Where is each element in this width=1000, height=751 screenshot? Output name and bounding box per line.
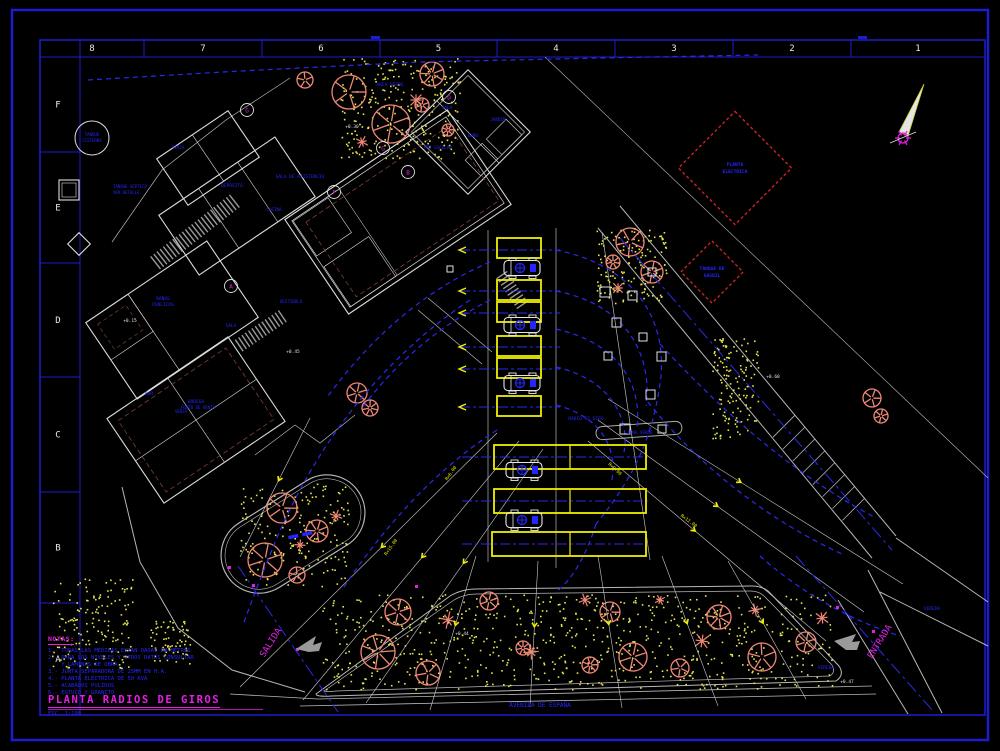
svg-text:+0.30: +0.30 — [345, 124, 359, 130]
right-road-edge2 — [598, 228, 872, 558]
grid-bubble: D — [443, 91, 456, 104]
tree-symbol — [297, 72, 313, 88]
tree-symbol — [863, 389, 881, 407]
svg-text:JARDIN: JARDIN — [490, 117, 506, 122]
svg-text:G: G — [245, 107, 249, 114]
palm-symbol — [439, 611, 456, 628]
grid-bubble: G — [241, 104, 254, 117]
palm-symbol — [356, 136, 368, 148]
palm-symbol — [816, 612, 828, 624]
palm-symbol — [655, 595, 665, 605]
grid-bubble: G — [377, 142, 390, 155]
avenue-edge2 — [300, 694, 876, 706]
svg-text:D: D — [55, 316, 60, 326]
frame-tick — [371, 36, 380, 39]
ruler-column-numbers: 87654321 — [89, 44, 920, 54]
car-symbol — [506, 460, 542, 481]
svg-text:AVENIDA DE ESPAÑA: AVENIDA DE ESPAÑA — [509, 702, 571, 709]
svg-text:B: B — [406, 169, 410, 176]
svg-text:RADIO DE GIRO: RADIO DE GIRO — [568, 416, 604, 422]
svg-text:TANQUE DE: TANQUE DE — [700, 266, 725, 272]
cad-drawing-canvas[interactable]: 87654321 FEDCBA — [0, 0, 1000, 751]
column-square — [447, 266, 453, 272]
svg-text:VER DETALLE: VER DETALLE — [113, 190, 140, 195]
svg-text:AREA VERDE: AREA VERDE — [376, 82, 403, 88]
svg-text:VERJA: VERJA — [172, 145, 185, 150]
grid-bubble: B — [402, 166, 415, 179]
valve-diamond-symbol — [68, 233, 91, 256]
column-square — [658, 425, 666, 433]
svg-text:B: B — [55, 544, 60, 554]
svg-text:D: D — [447, 94, 451, 101]
tree-symbol — [267, 493, 297, 523]
svg-text:4: 4 — [553, 44, 558, 54]
palm-symbol — [695, 634, 709, 648]
palm-symbol — [749, 604, 762, 617]
tree-symbol — [582, 657, 598, 673]
utility-diamond: PLANTAELECTRICA — [678, 111, 791, 224]
svg-text:+0.60: +0.60 — [766, 374, 780, 380]
svg-text:7: 7 — [200, 44, 205, 54]
svg-text:6: 6 — [318, 44, 323, 54]
svg-text:+0.45: +0.45 — [286, 349, 300, 355]
svg-text:+0.44: +0.44 — [455, 631, 469, 637]
wing-main-hall — [285, 110, 511, 314]
grid-bubbles-layer: GFAGDB — [225, 91, 456, 293]
wing-corridor — [159, 137, 315, 275]
palm-symbol — [295, 540, 306, 551]
entrada-arrow-icon — [834, 634, 860, 650]
svg-text:ELECTRICA: ELECTRICA — [723, 169, 748, 175]
tree-symbol — [671, 659, 689, 677]
svg-text:ZONA VERDE: ZONA VERDE — [627, 430, 653, 435]
tree-symbol — [707, 605, 731, 629]
grid-bubble: A — [225, 280, 238, 293]
svg-text:1: 1 — [915, 44, 920, 54]
palm-symbol — [613, 283, 623, 293]
car-symbol — [504, 258, 540, 279]
svg-text:F: F — [55, 101, 60, 111]
tree-symbol — [600, 602, 620, 622]
parking-stall — [497, 396, 541, 416]
tree-symbol — [361, 635, 395, 669]
tree-symbol — [362, 400, 378, 416]
tree-symbol — [516, 641, 530, 655]
svg-text:PLANTA: PLANTA — [727, 162, 744, 168]
svg-text:3: 3 — [671, 44, 676, 54]
svg-text:SALIDA: SALIDA — [258, 626, 284, 659]
svg-text:COCINA: COCINA — [266, 207, 282, 212]
utility-diamond: TANQUE DEGASOIL — [681, 241, 743, 303]
right-road-parking-stripes — [773, 415, 865, 520]
ground-cover-speckles — [52, 58, 833, 691]
svg-text:SALA DE ASISTENCIA: SALA DE ASISTENCIA — [276, 174, 325, 180]
svg-text:2: 2 — [789, 44, 794, 54]
parking-stall — [497, 238, 541, 258]
svg-text:C: C — [55, 431, 60, 441]
wing-bottom — [107, 337, 285, 503]
svg-text:R=12.00: R=12.00 — [679, 513, 698, 529]
svg-text:E: E — [55, 204, 60, 214]
car-symbol — [504, 373, 540, 394]
svg-text:BAÑOS: BAÑOS — [156, 295, 170, 302]
salida-arrow-icon — [296, 636, 322, 652]
car-symbol — [504, 315, 540, 336]
svg-text:A: A — [229, 283, 233, 290]
svg-text:BAR: BAR — [145, 391, 153, 397]
svg-text:VESTIBULO: VESTIBULO — [280, 299, 303, 304]
tree-symbol — [420, 62, 444, 86]
svg-text:VEREDA: VEREDA — [818, 665, 835, 671]
tree-symbol — [442, 124, 454, 136]
frame-tick — [858, 36, 867, 39]
tree-symbol — [616, 228, 644, 256]
svg-text:+0.15: +0.15 — [123, 318, 137, 324]
column-square — [600, 287, 610, 297]
roads-layer — [112, 57, 988, 714]
svg-text:ENTRADA: ENTRADA — [866, 623, 895, 661]
svg-text:PUBLICOS: PUBLICOS — [152, 302, 174, 308]
grid-bubble: F — [328, 186, 341, 199]
svg-text:CISTERNA: CISTERNA — [82, 138, 102, 143]
tree-symbol — [248, 543, 282, 577]
building-plan — [59, 70, 530, 503]
avenue-edge — [230, 686, 872, 699]
ruler-row-letters: FEDCBA — [55, 101, 61, 666]
tree-symbol — [606, 255, 620, 269]
svg-text:8: 8 — [89, 44, 94, 54]
north-arrow-icon — [890, 84, 924, 145]
svg-text:DEPOSITO: DEPOSITO — [221, 183, 243, 189]
svg-text:SALA: SALA — [442, 105, 453, 111]
left-curb — [122, 487, 305, 692]
tree-symbol — [619, 643, 647, 671]
utility-diamonds-layer: PLANTAELECTRICATANQUE DEGASOIL — [678, 111, 791, 303]
ramp-hatching — [151, 195, 528, 351]
palm-symbol — [579, 594, 591, 606]
svg-text:BAÑO: BAÑO — [468, 133, 479, 138]
parking-stall — [497, 336, 541, 356]
svg-text:F: F — [332, 189, 336, 196]
svg-text:SALA: SALA — [226, 323, 237, 329]
tree-symbol — [347, 383, 367, 403]
svg-text:R=15.00: R=15.00 — [383, 538, 399, 557]
tree-symbol — [480, 592, 498, 610]
tree-symbol — [332, 75, 366, 109]
cad-viewport[interactable]: 87654321 FEDCBA — [0, 0, 1000, 751]
tree-symbols-layer — [248, 62, 888, 685]
tree-symbol — [416, 661, 440, 685]
svg-text:TANQUE: TANQUE — [85, 132, 100, 137]
svg-text:VEREDA: VEREDA — [924, 606, 941, 612]
tree-symbol — [385, 599, 411, 625]
svg-text:GASOIL: GASOIL — [704, 273, 721, 279]
property-line — [545, 57, 988, 478]
svg-text:PRE ESCOLAR: PRE ESCOLAR — [424, 145, 452, 150]
palm-symbol — [410, 94, 421, 105]
svg-text:VERJA: VERJA — [175, 409, 188, 414]
svg-text:+0.47: +0.47 — [840, 679, 854, 685]
column-square — [639, 333, 647, 341]
parking-stall — [497, 302, 541, 322]
oval-planter — [207, 460, 380, 607]
tree-symbol — [641, 261, 663, 283]
svg-text:TANQUE SEPTICO: TANQUE SEPTICO — [113, 184, 147, 189]
svg-text:G: G — [381, 145, 385, 152]
svg-text:5: 5 — [436, 44, 441, 54]
tree-symbol — [874, 409, 888, 423]
